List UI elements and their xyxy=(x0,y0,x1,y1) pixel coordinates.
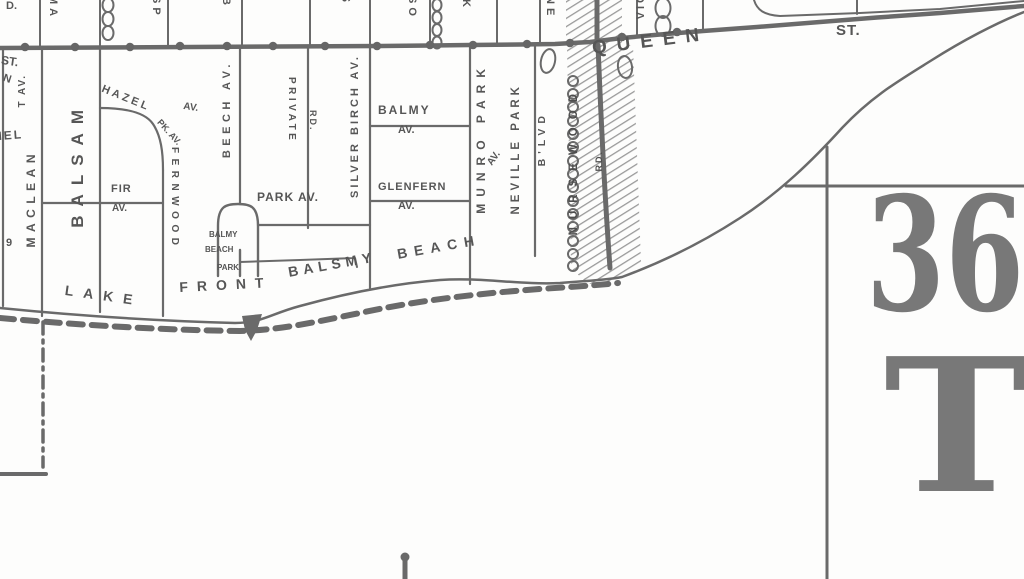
fragment-label-d: D. xyxy=(6,1,17,12)
street-label-fragment-k: K xyxy=(460,0,471,7)
street-label-private: PRIVATE xyxy=(286,77,296,143)
street-label-fragment-s: S xyxy=(340,0,352,2)
street-label-beech-av: BEECH AV. xyxy=(222,60,233,158)
fragment-label-iel: IEL xyxy=(0,128,23,142)
adjacent-plate-letter: T xyxy=(884,362,1024,492)
street-label-park-av: PARK AV. xyxy=(257,191,319,203)
street-label-nursewood-rd: RD. xyxy=(595,150,604,172)
street-label-glenfern: GLENFERN xyxy=(378,182,447,193)
street-label-maclean: MACLEAN xyxy=(25,149,37,248)
street-label-balmy: BALMY xyxy=(378,104,431,116)
street-label-munro-park: MUNRO PARK xyxy=(475,62,487,214)
street-label-queen-st: ST. xyxy=(836,23,861,38)
street-label-fragment-b: B xyxy=(220,0,231,5)
adjacent-plate-number: 36 xyxy=(866,198,1024,313)
park-label-beach: BEACH xyxy=(205,246,233,254)
park-label-balmy: BALMY xyxy=(209,231,237,239)
street-label-silver-birch-av: SILVER BIRCH AV. xyxy=(350,54,361,198)
fragment-label-9: 9 xyxy=(6,238,12,249)
park-label-park: PARK xyxy=(217,264,239,272)
street-label-glenfern-av: AV. xyxy=(398,201,415,212)
street-label-nursewood: NURSEWOOD xyxy=(569,86,581,235)
fragment-label-st: ST. xyxy=(0,54,19,68)
street-label-fernwood: FERNWOOD xyxy=(169,147,179,250)
street-label-private-rd: RD. xyxy=(308,110,317,132)
street-label-balmy-av: AV. xyxy=(398,125,415,136)
street-label-fir: FIR xyxy=(111,184,132,195)
street-label-hazel-av: AV. xyxy=(183,102,199,114)
hazel-street-curve xyxy=(100,108,163,170)
scanned-street-map: D. MA SP B S SO K NE VIC ST. N T AV. IEL… xyxy=(0,0,1024,579)
street-label-fragment-vic: VIC xyxy=(636,0,647,19)
street-label-fragment-ma: MA xyxy=(47,0,58,20)
street-label-balsam: BALSAM xyxy=(69,101,86,228)
street-label-fragment-ne: NE xyxy=(544,0,555,19)
street-label-fir-av: AV. xyxy=(112,204,127,214)
north-lot-lines xyxy=(40,0,857,46)
street-label-fragment-sp: SP xyxy=(150,0,161,19)
street-label-fragment-so: SO xyxy=(406,0,417,20)
street-label-neville-park: NEVILLE PARK xyxy=(511,83,523,215)
fragment-label-t-av: T AV. xyxy=(18,74,28,108)
street-label-neville-blvd: B'LVD xyxy=(537,111,548,166)
bottom-mark-dot xyxy=(401,553,410,562)
